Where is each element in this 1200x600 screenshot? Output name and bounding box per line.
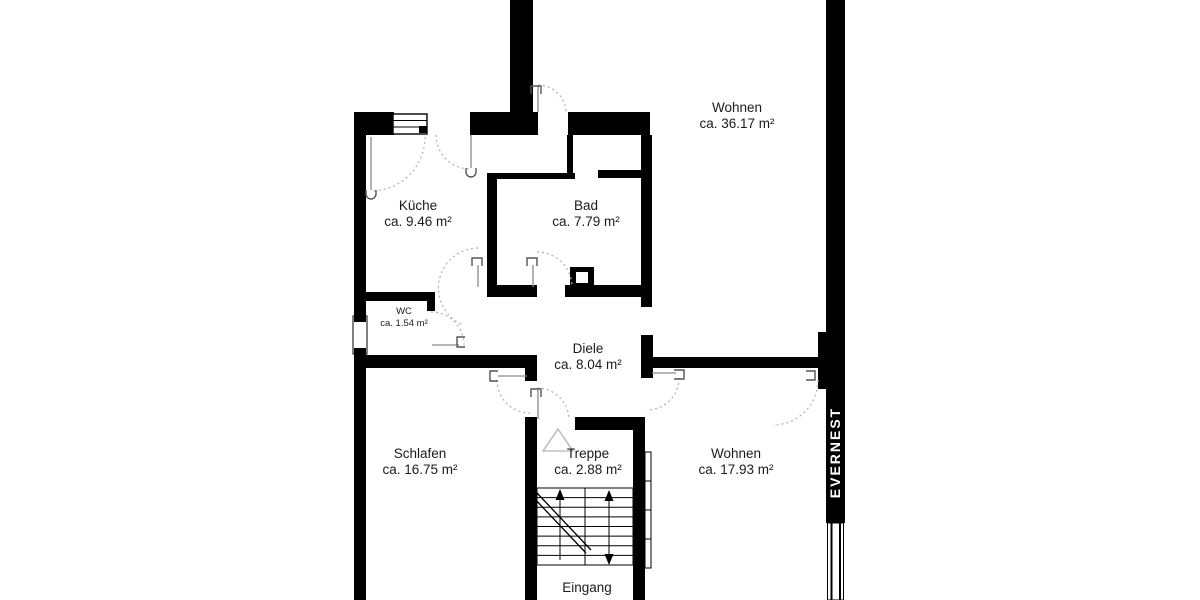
room-area: ca. 17.93 m² [636,462,836,478]
brand-watermark: EVERNEST [826,387,845,518]
shaft-symbol [570,267,594,288]
bad-top-vert [567,135,573,173]
kueche-top-door-arc [436,135,470,169]
room-area: ca. 36.17 m² [637,116,837,132]
room-label-wc: WC ca. 1.54 m² [354,306,454,330]
room-label-bad: Bad ca. 7.79 m² [486,198,686,230]
bad-nook-wall [598,170,641,178]
treppe-door-arc [537,388,569,420]
stair-break-lines [532,493,591,553]
stair-arrow-double-head-top [605,490,614,501]
wc-top-wall [354,292,435,301]
entrance-label: Eingang [487,580,687,596]
room-name: Diele [488,341,688,357]
right-wall-window [826,517,845,600]
room-area: ca. 1.54 m² [354,318,454,330]
floorplan-drawing [0,0,1200,600]
room-name: Wohnen [636,446,836,462]
treppe-right-wall [633,417,645,600]
treppe-top-wall [575,417,641,430]
hinge-treppe [531,389,541,397]
bad-bottom-wall-a [487,285,537,297]
floorplan-canvas: Wohnen ca. 36.17 m² Küche ca. 9.46 m² Ba… [0,0,1200,600]
room-name: Bad [486,198,686,214]
walls [354,0,845,600]
hinge-kueche-south [472,258,482,266]
room-area: ca. 7.79 m² [486,214,686,230]
wohnen-unten-door-arc [773,380,818,425]
bad-door-arc [537,252,572,287]
room-name: WC [354,306,454,318]
room-name: Wohnen [637,100,837,116]
room-label-wohnen-oben: Wohnen ca. 36.17 m² [637,100,837,132]
top-center-pier [510,0,533,112]
stair-arrow-up-head [556,489,565,500]
room-label-diele: Diele ca. 8.04 m² [488,341,688,373]
wohnen-top-door-arc [538,85,566,113]
kueche-top-wall-b [470,112,538,135]
door-arcs [371,85,818,425]
room-label-wohnen-unten: Wohnen ca. 17.93 m² [636,446,836,478]
hinge-bad [527,258,537,266]
schlafen-door-arc [497,380,530,413]
kueche-top-wall-a [354,112,394,135]
kueche-window [393,114,427,134]
diele-corner-door-arc [647,378,679,410]
bad-top-wall [487,173,575,179]
hinge-wohnen-unten [806,371,815,380]
kueche-window-arc [371,137,425,191]
room-area: ca. 8.04 m² [488,357,688,373]
schlafen-treppe-wall [525,417,537,600]
stair-arrow-double-head-bottom [605,554,614,565]
